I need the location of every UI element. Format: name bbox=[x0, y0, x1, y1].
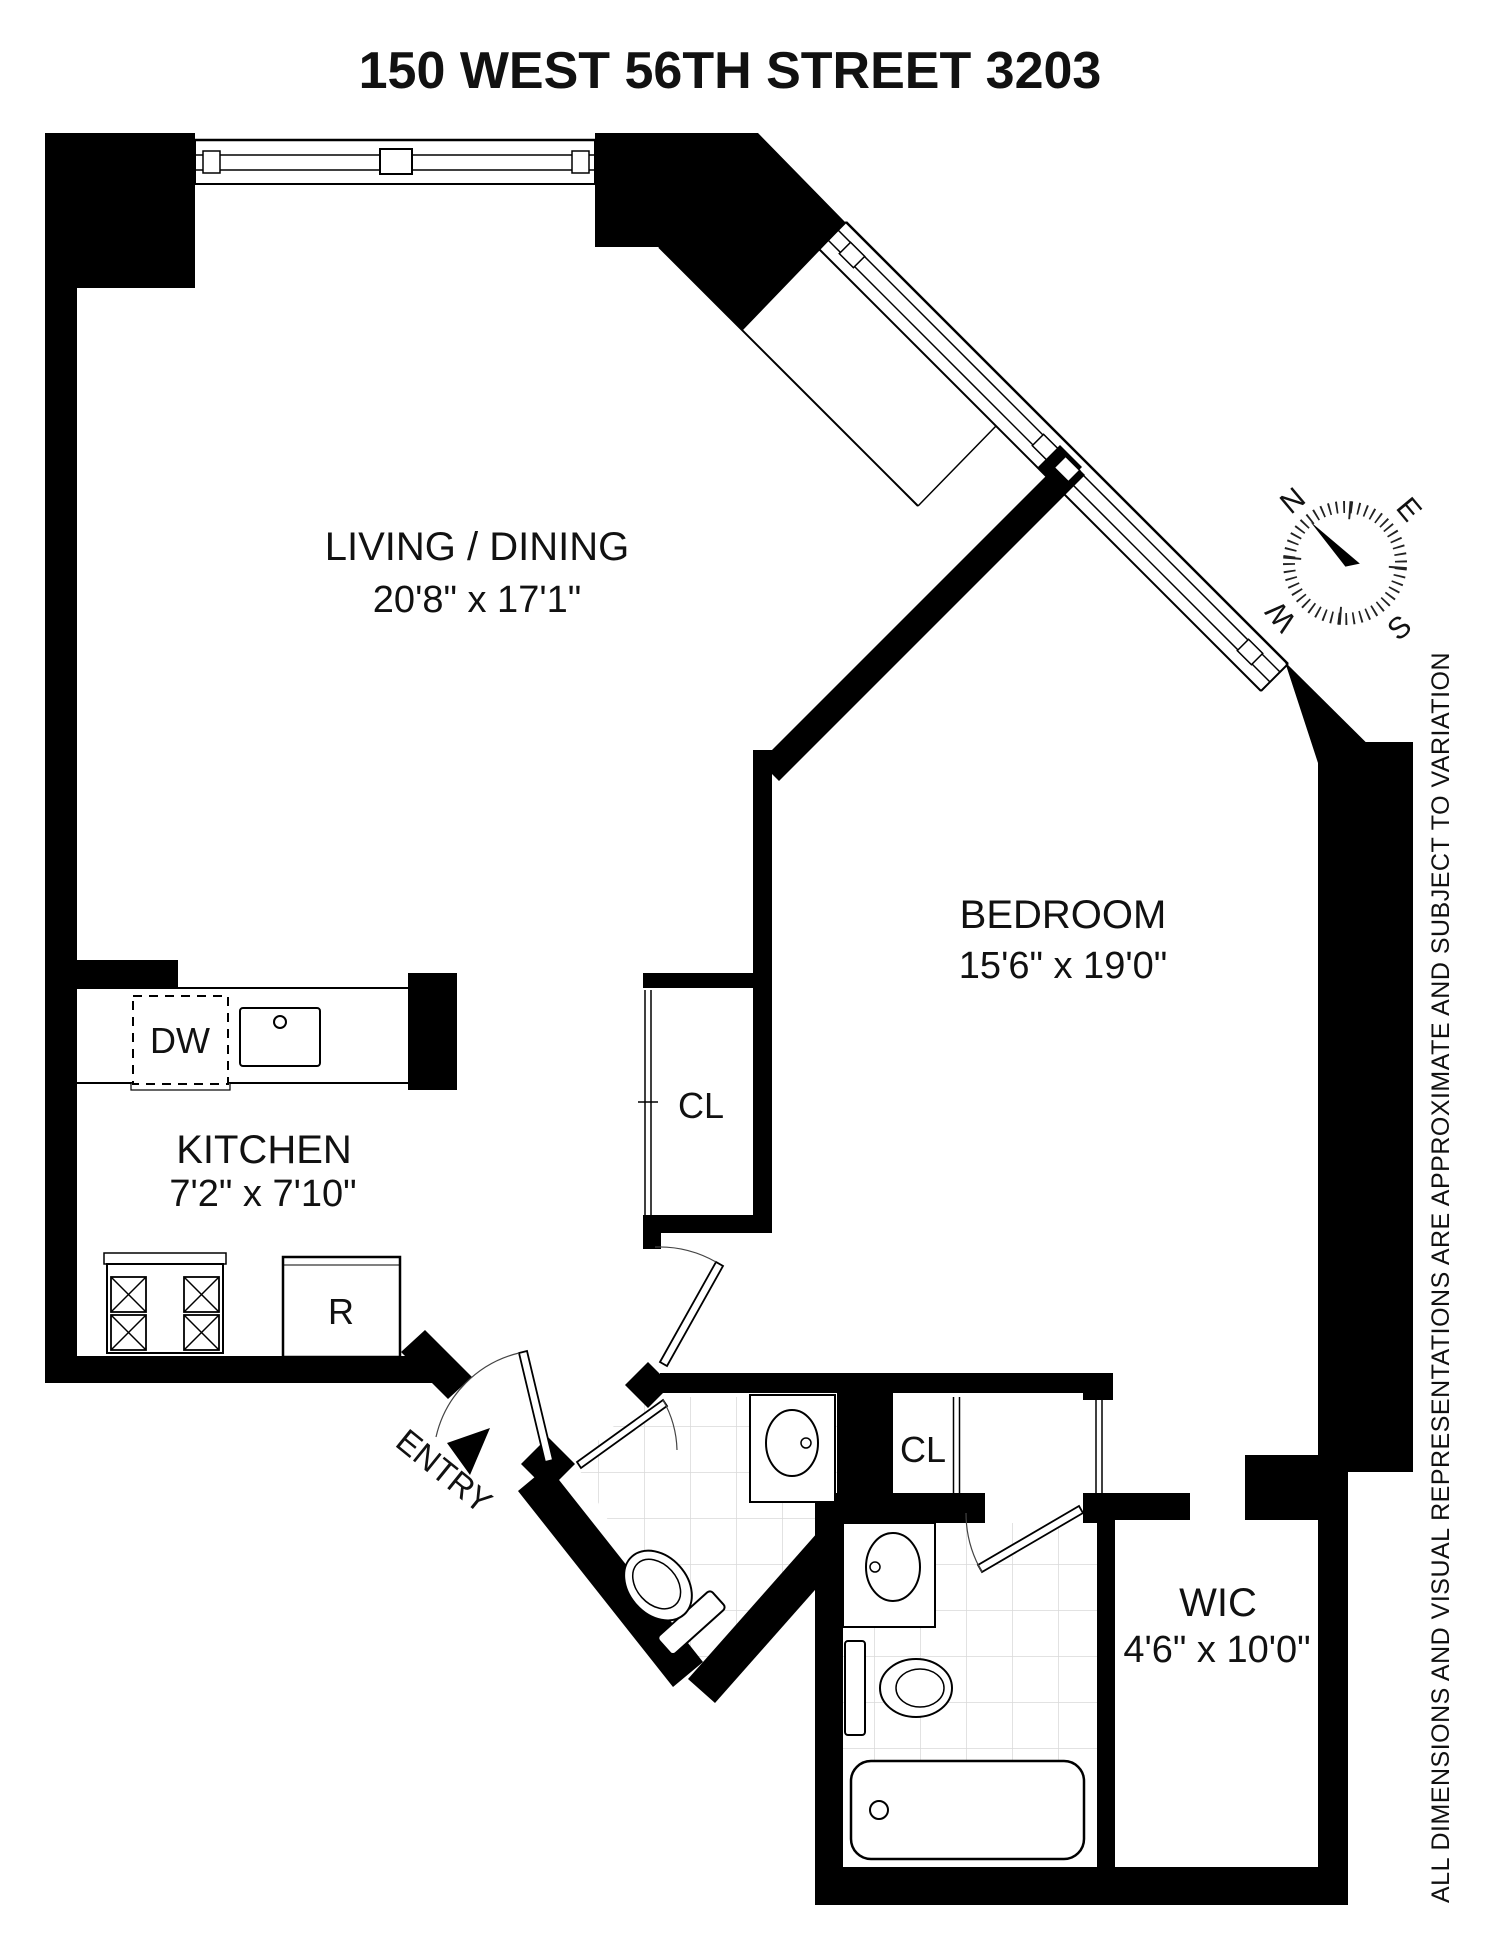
wall-segment bbox=[815, 1867, 1348, 1905]
wall-segment bbox=[815, 1493, 985, 1523]
dishwasher-label: DW bbox=[150, 1020, 210, 1061]
window-mullion bbox=[380, 149, 412, 174]
window-mullion bbox=[203, 151, 220, 173]
window-ledge-line bbox=[918, 426, 996, 506]
bedroom-doorway-frame bbox=[1096, 1400, 1102, 1493]
refrigerator-label: R bbox=[328, 1291, 354, 1332]
entry-door-leaf bbox=[519, 1351, 553, 1462]
wall-segment bbox=[837, 1393, 893, 1505]
floor-plan-drawing: N E S W 150 WEST 56TH STREET 3203 LIVING… bbox=[0, 0, 1500, 1938]
window-mullion bbox=[572, 151, 589, 173]
closet-hall-label: CL bbox=[678, 1085, 724, 1126]
bedroom-dimensions: 15'6" x 19'0" bbox=[959, 945, 1167, 987]
living-room-diagonal-wall-line bbox=[659, 247, 918, 506]
wall-segment bbox=[1318, 1472, 1348, 1905]
wall-segment bbox=[1097, 1516, 1115, 1880]
wall-segment bbox=[595, 133, 846, 330]
bedroom-label: BEDROOM bbox=[960, 893, 1167, 937]
stove-counter-edge bbox=[104, 1253, 226, 1264]
wall-segment bbox=[643, 1215, 772, 1233]
compass-south-label: S bbox=[1381, 609, 1418, 647]
kitchen-label: KITCHEN bbox=[176, 1128, 352, 1172]
kitchen-dimensions: 7'2" x 7'10" bbox=[169, 1173, 356, 1215]
wall-segment bbox=[1097, 1493, 1190, 1520]
wall-segment bbox=[45, 960, 178, 988]
disclaimer-text: ALL DIMENSIONS AND VISUAL REPRESENTATION… bbox=[1427, 652, 1455, 1903]
wall-segment bbox=[408, 973, 457, 1090]
wall-segment bbox=[643, 973, 753, 988]
wall-segment bbox=[1318, 742, 1413, 1472]
wall-segment bbox=[45, 1356, 445, 1383]
compass-needle bbox=[1309, 515, 1360, 572]
wall-segment bbox=[660, 1373, 1093, 1393]
wall-segment bbox=[815, 1523, 843, 1905]
wall-segment bbox=[760, 456, 1085, 781]
bathroom1-faucet bbox=[801, 1438, 811, 1448]
living-room-dimensions: 20'8" x 17'1" bbox=[373, 579, 581, 621]
bathtub-drain bbox=[870, 1801, 888, 1819]
window-mullion bbox=[839, 242, 864, 267]
closet2-door-track bbox=[954, 1397, 960, 1497]
hall-door-leaf bbox=[660, 1262, 723, 1366]
closet-dressing-label: CL bbox=[900, 1429, 946, 1470]
wall-segment bbox=[1245, 1455, 1320, 1520]
window-mullion bbox=[1237, 639, 1262, 664]
wall-segment bbox=[643, 1230, 661, 1249]
wic-dimensions: 4'6" x 10'0" bbox=[1123, 1629, 1310, 1671]
bathroom2-faucet bbox=[870, 1562, 880, 1572]
entry-marker: ENTRY bbox=[389, 1422, 499, 1521]
window-band-top bbox=[195, 140, 595, 184]
compass-east-label: E bbox=[1390, 491, 1428, 528]
wic-label: WIC bbox=[1179, 1581, 1257, 1625]
closet-sliding-door bbox=[638, 990, 658, 1216]
wall-segment bbox=[45, 133, 77, 1383]
wall-segment bbox=[753, 750, 772, 1233]
wall-segment bbox=[1083, 1373, 1113, 1400]
hall-door-swing bbox=[655, 1247, 716, 1262]
kitchen-faucet bbox=[274, 1016, 286, 1028]
living-room-label: LIVING / DINING bbox=[325, 525, 630, 569]
floor-plan-page: N E S W 150 WEST 56TH STREET 3203 LIVING… bbox=[0, 0, 1500, 1938]
page-title: 150 WEST 56TH STREET 3203 bbox=[359, 42, 1102, 100]
